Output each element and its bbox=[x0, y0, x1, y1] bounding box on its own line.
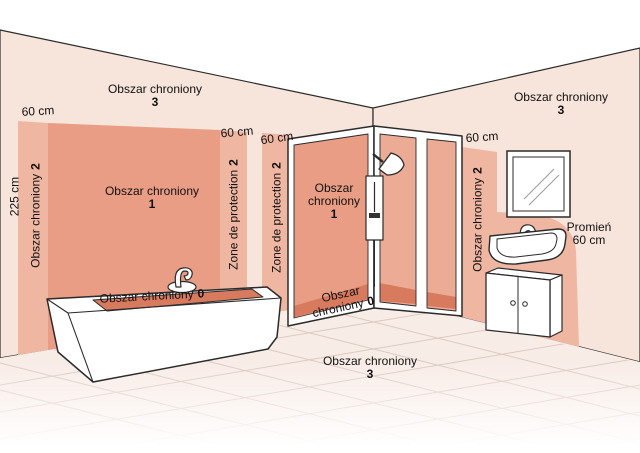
label-zone2-band-right: Obszar chroniony2 bbox=[472, 155, 485, 285]
label-radius-60cm: Promień 60 cm bbox=[549, 221, 629, 247]
label-60cm-right: 60 cm bbox=[462, 130, 503, 146]
cabinet-side bbox=[550, 275, 562, 337]
shower-glass-right-2 bbox=[427, 139, 456, 311]
label-text: Obszar chroniony bbox=[29, 174, 43, 268]
label-number: 0 bbox=[197, 286, 204, 300]
label-60cm-left: 60 cm bbox=[18, 104, 59, 119]
label-number: 3 bbox=[290, 368, 450, 381]
cabinet bbox=[486, 268, 562, 337]
label-zone-fr-2: Zone de protection2 bbox=[271, 153, 284, 283]
label-number: 2 bbox=[29, 163, 43, 170]
cabinet-knob-right bbox=[523, 302, 528, 307]
label-text: 60 cm bbox=[465, 129, 499, 145]
label-shower-zone1: Obszar chroniony 1 bbox=[294, 182, 374, 221]
label-number: 3 bbox=[481, 104, 640, 117]
cabinet-knob-left bbox=[511, 301, 516, 306]
bathroom-protection-zones-diagram: Obszar chroniony 3 60 cm 225 cm Obszar c… bbox=[0, 0, 640, 453]
label-number: 2 bbox=[227, 159, 241, 166]
label-text: Zone de protection bbox=[270, 173, 284, 273]
label-height-225cm: 225 cm bbox=[9, 172, 22, 222]
label-number: 1 bbox=[72, 198, 232, 211]
label-text: Zone de protection bbox=[227, 170, 241, 270]
scene-drawing bbox=[0, 0, 640, 453]
label-number: 2 bbox=[471, 167, 485, 174]
label-left-wall-zone3: Obszar chroniony 3 bbox=[75, 83, 235, 109]
label-number: 2 bbox=[270, 162, 284, 169]
label-number: 3 bbox=[75, 96, 235, 109]
label-text: 60 cm bbox=[21, 103, 54, 119]
label-floor-zone3: Obszar chroniony 3 bbox=[290, 355, 450, 381]
label-text: Obszar chroniony bbox=[471, 178, 485, 272]
label-right-wall-zone3: Obszar chroniony 3 bbox=[481, 91, 640, 117]
label-zone2-band-left: Obszar chroniony2 bbox=[30, 151, 43, 281]
label-zone1-left-wall: Obszar chroniony 1 bbox=[72, 185, 232, 211]
label-text: 225 cm bbox=[8, 177, 22, 216]
label-number: 1 bbox=[294, 208, 374, 221]
label-text: 60 cm bbox=[220, 124, 254, 141]
label-zone-fr-1: Zone de protection2 bbox=[228, 150, 241, 280]
mirror bbox=[507, 151, 570, 217]
label-text: 60 cm bbox=[549, 234, 629, 247]
label-number: 0 bbox=[366, 294, 375, 309]
